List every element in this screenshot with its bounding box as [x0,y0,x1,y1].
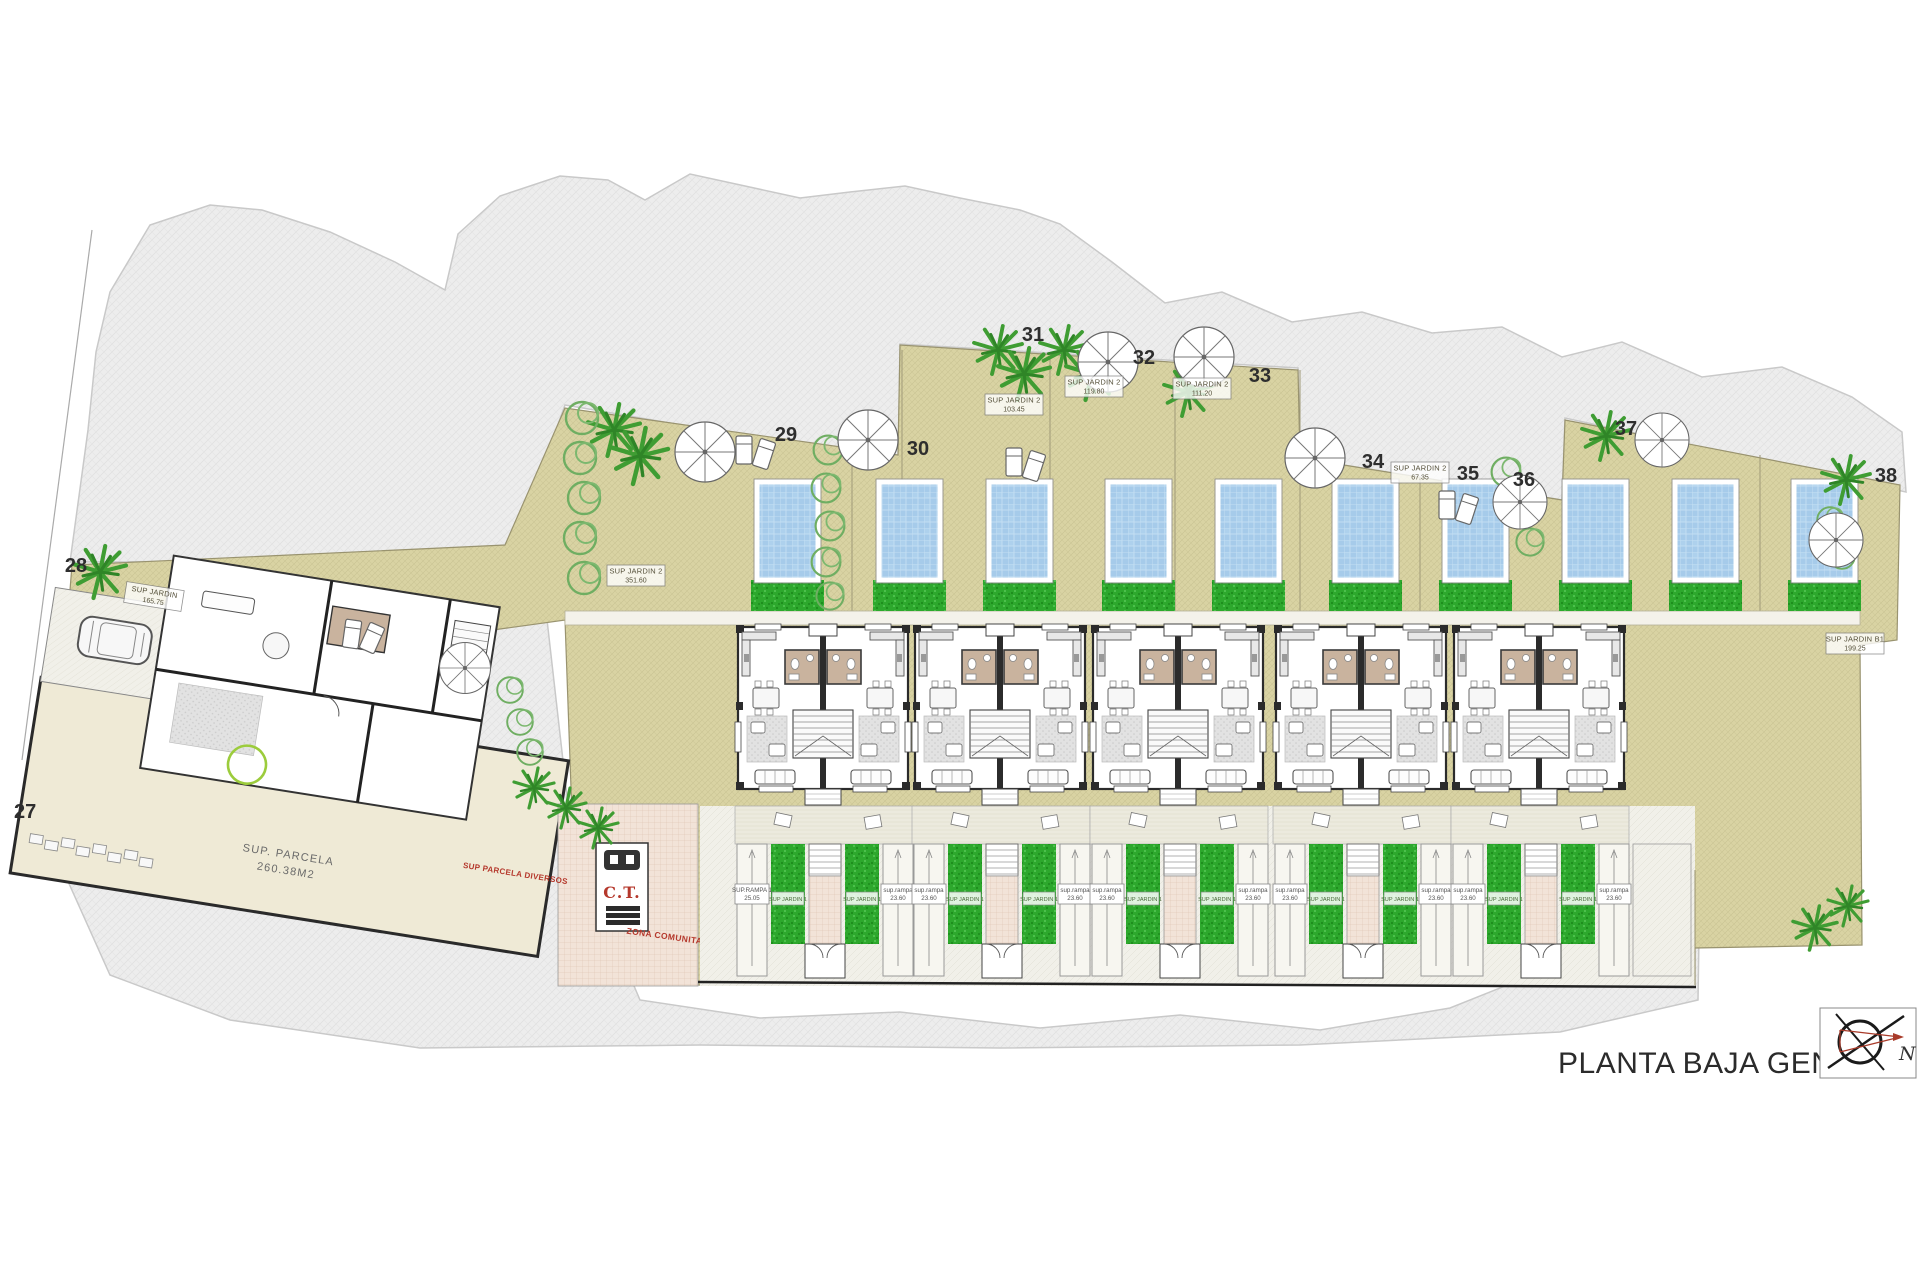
umbrella-icon [1809,513,1863,567]
svg-text:SUP JARDIN B1: SUP JARDIN B1 [1826,635,1884,644]
plot-number-37: 37 [1615,418,1637,440]
compass-icon: N [1820,1008,1917,1078]
garden1-label: SUP JARDIN 1 [769,897,807,903]
ramp-label: sup.rampa [1421,887,1451,894]
plot-number-29: 29 [775,424,797,446]
swimming-pool [989,482,1050,580]
umbrella-icon [1635,413,1689,467]
garden1-label: SUP JARDIN 1 [1020,897,1058,903]
svg-text:SUP JARDIN 2: SUP JARDIN 2 [1175,380,1228,389]
plot-number-35: 35 [1457,463,1479,485]
porch [1160,944,1200,978]
lawn-strip [1212,580,1285,611]
ramp-value: 23.60 [890,895,906,902]
lawn-strip [1439,580,1512,611]
lawn-strip [1669,580,1742,611]
ramp-label: sup.rampa [883,887,913,894]
lawn-strip [1559,580,1632,611]
svg-text:199.25: 199.25 [1844,646,1866,653]
svg-text:351.60: 351.60 [625,578,647,585]
swimming-pool [1108,482,1169,580]
ramp-label: sup.rampa [1453,887,1483,894]
svg-text:119.80: 119.80 [1084,389,1105,396]
side-court [1633,844,1691,976]
area-label: SUP JARDIN 2 119.80 [1065,376,1123,397]
ramp-value: 23.60 [1606,895,1622,902]
svg-text:67.35: 67.35 [1411,475,1429,482]
plot-number-34: 34 [1362,451,1385,473]
svg-text:SUP JARDIN 2: SUP JARDIN 2 [1393,464,1446,473]
walkway [565,611,1860,625]
ramp-value: 23.60 [1067,895,1083,902]
lawn-strip [1102,580,1175,611]
garden1-label: SUP JARDIN 1 [1198,897,1236,903]
plot-number-27: 27 [14,801,36,823]
plot-number-36: 36 [1513,469,1535,491]
lawn-strip [1329,580,1402,611]
duplex-house-block [735,624,911,805]
svg-text:111.20: 111.20 [1192,391,1212,398]
umbrella-icon [440,643,491,694]
ramp-value: 23.60 [1245,895,1261,902]
lawn-strip [751,580,824,611]
ramp-label: sup.rampa [1060,887,1090,894]
garden1-label: SUP JARDIN 1 [1485,897,1523,903]
porch [805,944,845,978]
plot-number-33: 33 [1249,365,1271,387]
sun-lounger-icon [736,436,752,464]
swimming-pool [1565,482,1626,580]
ramp-value: 23.60 [1099,895,1115,902]
lawn-strip [873,580,946,611]
ramp-value: 23.60 [1428,895,1444,902]
north-label: N [1898,1043,1917,1065]
sun-lounger-icon [342,619,362,649]
lawn-strip [1788,580,1861,611]
area-label: SUP JARDIN 2 111.20 [1173,378,1231,399]
porch [1343,944,1383,978]
svg-text:SUP JARDIN 2: SUP JARDIN 2 [609,567,662,576]
transformer-icon [604,850,640,870]
garden1-label: SUP JARDIN 1 [1124,897,1162,903]
plot-number-31: 31 [1022,324,1044,346]
area-label: SUP JARDIN B1 199.25 [1826,633,1884,654]
garden1-label: SUP JARDIN 1 [1381,897,1419,903]
plot-number-28: 28 [65,555,87,577]
porch [1521,944,1561,978]
swimming-pool [757,482,818,580]
site-plan-page: sup.rampa 23.20 SUP. PARCELA 260.38M2 C.… [0,0,1920,1280]
ramp-value: 23.60 [1282,895,1298,902]
swimming-pool [1335,482,1396,580]
sun-lounger-icon [1439,491,1455,519]
plot-number-32: 32 [1133,347,1155,369]
lawn-strip [983,580,1056,611]
ramp-label: sup.rampa [1275,887,1305,894]
ramp-label: sup.rampa [1092,887,1122,894]
umbrella-icon [838,410,898,470]
porch [982,944,1022,978]
duplex-house-block [1451,624,1627,805]
terrace-band [735,806,1629,844]
duplex-house-block [1090,624,1266,805]
umbrella-icon [1285,428,1345,488]
ramp-value: 25.05 [744,895,760,902]
ramp-label: sup.rampa [1599,887,1629,894]
garden1-label: SUP JARDIN 1 [843,897,881,903]
area-label: SUP JARDIN 2 351.60 [607,565,665,586]
swimming-pool [879,482,940,580]
ramp-label: sup.rampa [914,887,944,894]
ramp-label: sup.rampa [1238,887,1268,894]
svg-text:SUP JARDIN 2: SUP JARDIN 2 [1067,378,1120,387]
sun-lounger-icon [1006,448,1022,476]
garden1-label: SUP JARDIN 1 [1559,897,1597,903]
plot-number-38: 38 [1875,465,1897,487]
ramp-value: 23.60 [921,895,937,902]
swimming-pool [1218,482,1279,580]
duplex-house-block [912,624,1088,805]
site-plan-canvas: sup.rampa 23.20 SUP. PARCELA 260.38M2 C.… [0,0,1920,1280]
garden1-label: SUP JARDIN 1 [1307,897,1345,903]
area-label: SUP JARDIN 2 103.45 [985,394,1043,415]
garden1-label: SUP JARDIN 1 [946,897,984,903]
svg-text:103.45: 103.45 [1003,407,1025,414]
ramp-value: 23.60 [1460,895,1476,902]
swimming-pool [1675,482,1736,580]
ct-box: C.T. [596,843,648,931]
ct-label: C.T. [603,883,640,902]
plot-number-30: 30 [907,438,929,460]
duplex-house-block [1273,624,1449,805]
umbrella-icon [675,422,735,482]
svg-text:SUP JARDIN 2: SUP JARDIN 2 [987,396,1040,405]
ramp-label: SUP.RAMPA 1 [732,887,773,894]
area-label: SUP JARDIN 2 67.35 [1391,462,1449,483]
